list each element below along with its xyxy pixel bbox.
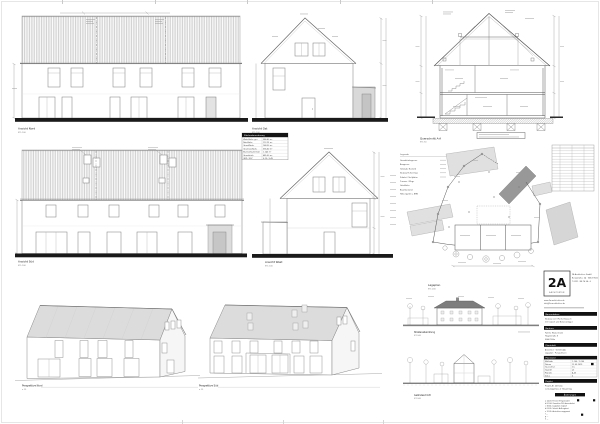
- site-plan-scale: M 1:200: [428, 289, 436, 291]
- coordinate-table: [552, 145, 594, 191]
- roof-truss: [434, 14, 550, 67]
- left-dimension: [16, 199, 19, 255]
- svg-text:Ansichten · Schnitt A-A: Ansichten · Schnitt A-A: [545, 349, 566, 352]
- ground-line: [252, 254, 393, 258]
- fold-mark: [247, 0, 248, 4]
- ground-line: [15, 254, 247, 258]
- annotation-blur: [72, 147, 158, 150]
- svg-text:1:100 / 1:200: 1:100 / 1:200: [572, 361, 585, 363]
- svg-text:386,40 m²: 386,40 m²: [263, 138, 273, 141]
- svg-text:Baugrenze: Baugrenze: [400, 163, 411, 166]
- plan-sheet: Ansicht Nord M 1:100: [0, 0, 600, 424]
- stairs: [445, 81, 467, 114]
- svg-text:Legende: Legende: [400, 154, 410, 156]
- rear-elevation-label: Ansicht Süd: [18, 260, 34, 264]
- center-building: [434, 298, 485, 326]
- existing-building-dark: [499, 166, 536, 204]
- svg-text:Planinhalt: Planinhalt: [546, 344, 556, 347]
- fold-mark: [340, 0, 341, 4]
- gable-west-label: Ansicht West: [265, 260, 282, 264]
- svg-text:Gezeichnet: Gezeichnet: [545, 366, 555, 369]
- perspective-rear-drawing: Perspektive Süd o. M.: [196, 296, 382, 396]
- svg-text:Baumbestand: Baumbestand: [400, 188, 413, 191]
- title-block: 2A ARCHITEKTEN 2A Architekten GmbH Beisp…: [541, 264, 600, 424]
- svg-text:50667 Köln: 50667 Köln: [545, 339, 555, 341]
- svg-text:Terrasse / Wege: Terrasse / Wege: [400, 180, 415, 183]
- svg-text:Geprüft: Geprüft: [545, 369, 552, 372]
- ground-line: [252, 118, 388, 122]
- house-outline: [454, 355, 474, 384]
- terrain-section-scale: M 1:500: [414, 398, 421, 400]
- front-elevation-label: Ansicht Nord: [18, 127, 35, 131]
- svg-text:Maßstab: Maßstab: [545, 360, 554, 363]
- perspective-rear-label: Perspektive Süd: [199, 385, 219, 388]
- fold-mark: [155, 0, 156, 4]
- roof: [20, 150, 244, 200]
- svg-text:e 12.05. Ansichten angepasst: e 12.05. Ansichten angepasst: [545, 410, 570, 413]
- svg-text:Wohnfläche ges.: Wohnfläche ges.: [243, 139, 258, 141]
- svg-text:112,25 m²: 112,25 m²: [263, 141, 273, 144]
- section-project: Bauvorhaben Neubau von 3 Reihenhäusern m…: [544, 312, 597, 324]
- annex: [352, 87, 376, 118]
- fold-mark: [182, 420, 183, 424]
- fold-mark: [432, 0, 433, 4]
- svg-text:c 18.04. Lageplan ergänzt: c 18.04. Lageplan ergänzt: [545, 405, 567, 408]
- site-plan-label: Lageplan: [428, 283, 441, 287]
- street-elevation-label: Straßenabwicklung: [414, 331, 436, 334]
- svg-text:Neubau von 3 Reihenhäusern: Neubau von 3 Reihenhäusern: [545, 318, 572, 321]
- revision-list: Änderungen a 14.03. Fenster EG geändert …: [545, 393, 595, 421]
- svg-text:a 14.03. Fenster EG geändert: a 14.03. Fenster EG geändert: [545, 399, 570, 402]
- svg-text:A-03: A-03: [572, 372, 576, 375]
- svg-text:b 02.04. Grundriss DG überar: b 02.04. Grundriss DG überarbeitet: [545, 402, 575, 405]
- svg-text:12.05.2019: 12.05.2019: [572, 364, 583, 366]
- rear-elevation-drawing: Ansicht Süd M 1:100: [14, 146, 256, 270]
- ground-line: [15, 118, 248, 122]
- note-box: [477, 133, 525, 139]
- svg-text:Nutzfläche: Nutzfläche: [243, 141, 253, 144]
- section-content: Planinhalt Ansichten · Schnitt A-A Lagep…: [544, 343, 597, 355]
- foundation: [417, 117, 563, 131]
- svg-text:Grünfläche: Grünfläche: [400, 184, 411, 187]
- gable-elevation-west-drawing: Ansicht West M 1:100: [252, 146, 400, 270]
- svg-text:h —: h —: [545, 419, 549, 421]
- street-elevation-drawing: Straßenabwicklung M 1:500: [398, 294, 544, 338]
- annex: [261, 222, 288, 254]
- svg-text:Plan-Nr.: Plan-Nr.: [545, 372, 552, 375]
- front-elevation-drawing: Ansicht Nord M 1:100: [10, 10, 250, 138]
- fold-mark: [283, 420, 284, 424]
- site-plan-legend: Legende Grundstücksgrenze Baugrenze Gebä…: [400, 154, 448, 196]
- svg-text:ms: ms: [572, 367, 575, 369]
- roof: [20, 16, 242, 64]
- svg-text:Bauherr: Bauherr: [546, 327, 554, 330]
- rear-elevation-scale: M 1:100: [18, 265, 26, 267]
- gable-west-scale: M 1:100: [265, 266, 273, 268]
- area-table-header: Flächenberechnung: [244, 134, 265, 137]
- perspective-front-drawing: Perspektive Nord o. M.: [15, 296, 200, 396]
- svg-text:Planstand: Planstand: [546, 357, 557, 360]
- front-elevation-scale: M 1:100: [18, 132, 26, 134]
- svg-text:Datum: Datum: [545, 363, 551, 366]
- svg-text:Neubau Reihenhaus: Neubau Reihenhaus: [400, 173, 418, 175]
- svg-text:Leistungsphase 4 · Bauantrag: Leistungsphase 4 · Bauantrag: [545, 388, 572, 391]
- svg-text:Grundstücksgrenze: Grundstücksgrenze: [400, 159, 418, 162]
- svg-text:Familie Mustermann: Familie Mustermann: [545, 332, 563, 335]
- gable-east-label: Ansicht Ost: [252, 127, 267, 131]
- svg-text:Index: Index: [545, 375, 550, 377]
- new-building-footprint: [455, 206, 531, 250]
- street-elevation-scale: M 1:500: [414, 335, 421, 337]
- perspective-front-label: Perspektive Nord: [22, 385, 43, 388]
- svg-text:mit Carport und Nebenanlagen: mit Carport und Nebenanlagen: [545, 321, 573, 324]
- dimension-line: [60, 12, 170, 15]
- svg-text:Änderungen: Änderungen: [564, 394, 577, 397]
- office-logo: 2A ARCHITEKTEN: [544, 271, 570, 296]
- svg-text:Gebäude Bestand: Gebäude Bestand: [400, 167, 416, 170]
- terrain-section-label: Geländeschnitt: [414, 394, 431, 397]
- section-client: Bauherr Familie Mustermann Hauptstraße 8…: [544, 326, 597, 341]
- perspective-front-scale: o. M.: [22, 389, 27, 391]
- plan-table: Planstand Maßstab1:100 / 1:200 Datum12.0…: [544, 356, 597, 377]
- roof: [280, 152, 378, 199]
- left-dimension: [13, 63, 16, 119]
- cross-section-drawing: Querschnitt A-A M 1:50: [415, 6, 565, 142]
- svg-text:d 03.05. Schnitt A-A ergänzt: d 03.05. Schnitt A-A ergänzt: [545, 407, 569, 410]
- roof: [261, 18, 356, 64]
- svg-text:T 0221 / 98 76 54 - 0: T 0221 / 98 76 54 - 0: [572, 281, 592, 283]
- svg-text:2A Architekten GmbH: 2A Architekten GmbH: [572, 273, 592, 276]
- svg-text:Hauptstraße 8: Hauptstraße 8: [545, 335, 559, 338]
- svg-text:www.2a-architekten.de: www.2a-architekten.de: [544, 299, 566, 302]
- terrain-section-drawing: Geländeschnitt M 1:500: [398, 346, 544, 402]
- svg-text:Höhenpunkt ü. NHN: Höhenpunkt ü. NHN: [400, 193, 419, 196]
- svg-text:Bauvorhaben: Bauvorhaben: [546, 313, 561, 316]
- svg-text:Projekt: Projekt: [546, 380, 553, 383]
- cross-section-label: Querschnitt A-A: [420, 137, 441, 141]
- perspective-rear-scale: o. M.: [199, 389, 204, 391]
- walls-floors: [435, 66, 550, 119]
- svg-text:info@2a-architekten.de: info@2a-architekten.de: [544, 302, 566, 305]
- svg-text:Zufahrt / Stellplätze: Zufahrt / Stellplätze: [400, 176, 419, 179]
- fold-mark: [62, 0, 63, 4]
- annotation-blur: [324, 148, 333, 149]
- svg-text:Lageplan · Perspektiven: Lageplan · Perspektiven: [545, 352, 567, 355]
- fold-mark: [383, 420, 384, 424]
- logo-text: 2A: [548, 275, 567, 290]
- svg-text:Beispielallee 24 · 50672 Köln: Beispielallee 24 · 50672 Köln: [572, 278, 598, 280]
- svg-text:Projekt-Nr. 2019-14: Projekt-Nr. 2019-14: [545, 385, 563, 388]
- dimension-chains: [416, 15, 565, 119]
- section-info: Projekt Projekt-Nr. 2019-14 Leistungspha…: [544, 379, 597, 391]
- gable-elevation-east-drawing: Ansicht Ost M 1:100: [248, 10, 393, 138]
